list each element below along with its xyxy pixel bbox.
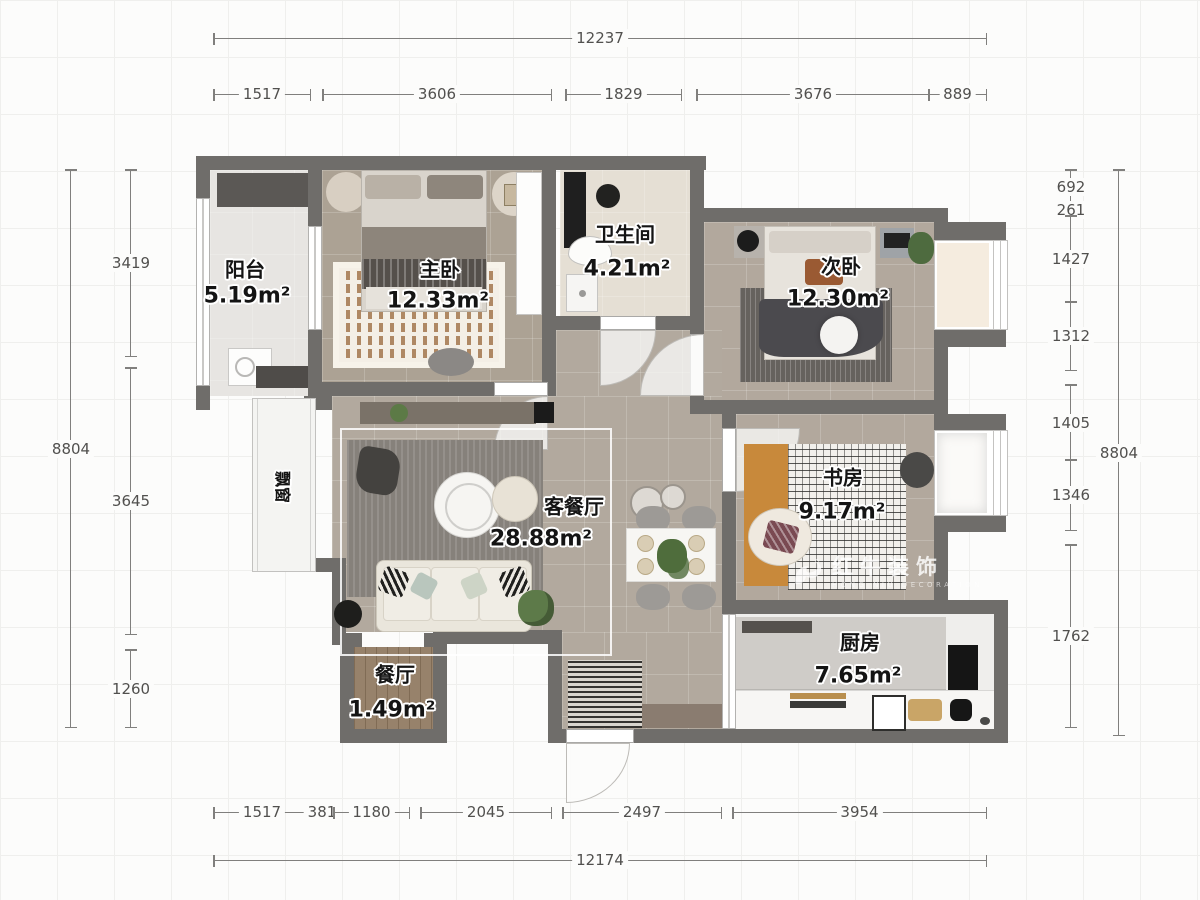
dim-bottom-seg4: 2045 xyxy=(421,812,551,813)
window-frame-line xyxy=(310,399,311,571)
cutting-board xyxy=(908,699,942,721)
dim-label: 692 xyxy=(1053,178,1090,196)
sofa xyxy=(376,560,532,632)
shelf-board xyxy=(790,693,846,699)
dim-bottom-seg5: 2497 xyxy=(563,812,721,813)
floorplan-canvas: 12237 1517 3606 1829 3676 889 1517 381 1… xyxy=(0,0,1200,900)
room-name: 书房 xyxy=(823,462,863,491)
dim-bottom-seg1: 1517 xyxy=(214,812,310,813)
wardrobe xyxy=(516,172,542,315)
dim-right-total: 8804 xyxy=(1118,170,1119,735)
room-name: 卫生间 xyxy=(595,219,655,248)
wall xyxy=(690,400,948,414)
pillow xyxy=(365,175,421,199)
wall xyxy=(722,492,736,614)
door-leaf xyxy=(600,316,656,330)
dim-right-seg3: 1427 xyxy=(1070,216,1071,302)
dim-label: 1427 xyxy=(1048,250,1094,268)
balcony-mat xyxy=(256,366,308,388)
wall xyxy=(722,600,1008,614)
room-area: 12.33m² xyxy=(387,289,489,314)
wall xyxy=(308,382,494,396)
place-setting xyxy=(637,535,654,552)
kitchen-sink xyxy=(872,695,906,731)
floor-lamp xyxy=(334,600,362,628)
room-area: 5.19m² xyxy=(204,284,291,309)
room-name: 次卧 xyxy=(821,251,861,280)
entry-door-leaf xyxy=(566,729,634,743)
dim-label: 1517 xyxy=(239,803,285,821)
dim-label: 12237 xyxy=(572,29,628,47)
dim-right-seg5: 1405 xyxy=(1070,385,1071,460)
doormat xyxy=(568,660,642,728)
window-frame-line xyxy=(1000,241,1001,329)
dim-label: 1405 xyxy=(1048,414,1094,432)
window-frame-line xyxy=(993,241,994,329)
centerpiece-plant xyxy=(657,539,687,573)
room-area: 4.21m² xyxy=(584,257,671,282)
rice-cooker xyxy=(950,699,972,721)
dim-label: 8804 xyxy=(1096,444,1142,462)
window xyxy=(308,226,322,330)
wall xyxy=(196,156,706,170)
wall xyxy=(690,208,948,222)
room-area: 7.65m² xyxy=(815,664,902,689)
entry-door-swing xyxy=(566,743,630,803)
dim-label: 889 xyxy=(939,85,976,103)
wall xyxy=(196,386,210,410)
drain xyxy=(579,290,586,297)
bedroom-pouf xyxy=(428,348,474,376)
bull-logo-icon xyxy=(788,556,824,590)
knob xyxy=(980,717,990,725)
shower-head xyxy=(596,184,620,208)
plant xyxy=(518,590,554,626)
wall xyxy=(548,729,566,743)
ball-lamp xyxy=(820,316,858,354)
tv xyxy=(884,233,910,248)
dim-right-seg1: 692 xyxy=(1070,170,1071,203)
dim-label: 3419 xyxy=(108,254,154,272)
place-setting xyxy=(688,535,705,552)
tv-console xyxy=(360,402,536,424)
window-frame-line xyxy=(257,399,258,571)
dim-top-seg5: 889 xyxy=(929,94,986,95)
nightstand xyxy=(326,172,366,212)
dim-label: 3676 xyxy=(790,85,836,103)
wall xyxy=(934,330,1006,347)
room-name: 餐厅 xyxy=(375,659,415,688)
study-desk xyxy=(937,433,987,513)
dim-top-seg3: 1829 xyxy=(566,94,681,95)
fridge xyxy=(948,645,978,691)
side-table xyxy=(492,476,538,522)
plant xyxy=(390,404,408,422)
dim-label: 1180 xyxy=(348,803,394,821)
wall xyxy=(934,516,1006,532)
wall xyxy=(308,156,322,226)
wall xyxy=(690,156,704,334)
bay-window-seat xyxy=(937,243,989,327)
wall xyxy=(556,316,600,330)
watermark-tagline: HONG NIU DECORATION xyxy=(832,581,983,589)
dim-left-seg1: 3419 xyxy=(130,170,131,356)
dim-top-seg1: 1517 xyxy=(214,94,310,95)
plaid-pillow xyxy=(762,520,800,555)
pillow xyxy=(427,175,483,199)
dining-chair xyxy=(636,584,670,610)
wall xyxy=(722,414,736,428)
watermark: 红牛装饰 HONG NIU DECORATION xyxy=(788,556,983,590)
dim-right-seg4: 1312 xyxy=(1070,302,1071,370)
dim-label: 1762 xyxy=(1048,627,1094,645)
wall xyxy=(340,729,447,743)
room-area: 28.88m² xyxy=(490,527,592,552)
dim-label: 1517 xyxy=(239,85,285,103)
washer-drum xyxy=(235,357,255,377)
dim-label: 1260 xyxy=(108,680,154,698)
wall xyxy=(196,156,210,198)
dim-left-seg3: 1260 xyxy=(130,650,131,727)
wall xyxy=(542,156,556,396)
dim-left-seg2: 3645 xyxy=(130,368,131,634)
dim-right-seg7: 1762 xyxy=(1070,545,1071,727)
watermark-brand: 红牛装饰 xyxy=(832,557,983,578)
place-setting xyxy=(637,558,654,575)
dim-label: 1829 xyxy=(600,85,646,103)
stove xyxy=(790,701,846,708)
balcony-mat xyxy=(217,173,308,207)
wall xyxy=(934,222,1006,240)
dim-label: 1346 xyxy=(1048,486,1094,504)
desk-chair xyxy=(900,452,934,488)
door-leaf xyxy=(494,382,548,396)
wall xyxy=(634,729,1008,743)
room-area: 1.49m² xyxy=(349,698,436,723)
dining-chair xyxy=(682,584,716,610)
room-name: 客餐厅 xyxy=(544,491,604,520)
room-area: 12.30m² xyxy=(787,287,889,312)
place-setting xyxy=(688,558,705,575)
window-frame-line xyxy=(1000,431,1001,515)
table-ring xyxy=(445,483,493,531)
dim-label: 3645 xyxy=(108,492,154,510)
dim-top-total: 12237 xyxy=(214,38,986,39)
entry-mat xyxy=(642,704,722,728)
dim-top-seg2: 3606 xyxy=(323,94,551,95)
room-name: 主卧 xyxy=(420,254,460,283)
dim-bottom-total: 12174 xyxy=(214,860,986,861)
plant xyxy=(908,232,934,264)
nightstand xyxy=(734,226,764,258)
door-leaf xyxy=(722,428,736,492)
wall xyxy=(934,414,1006,430)
room-area: 9.17m² xyxy=(799,500,886,525)
speaker xyxy=(737,230,759,252)
dim-bottom-seg2: 381 xyxy=(310,812,334,813)
wall xyxy=(994,614,1008,743)
throw-blanket xyxy=(354,445,403,497)
dim-bottom-seg3: 1180 xyxy=(334,812,409,813)
window-frame-line xyxy=(993,431,994,515)
range-hood xyxy=(742,621,812,633)
dim-label: 2045 xyxy=(463,803,509,821)
pendant-lamp xyxy=(660,484,686,510)
dim-label: 12174 xyxy=(572,851,628,869)
dim-bottom-seg6: 3954 xyxy=(733,812,986,813)
dim-label: 1312 xyxy=(1048,327,1094,345)
dim-top-seg4: 3676 xyxy=(697,94,929,95)
room-name: 阳台 xyxy=(225,254,265,283)
dim-label: 3954 xyxy=(836,803,882,821)
study-bay-window xyxy=(934,430,1008,516)
dining-table xyxy=(626,528,716,582)
room-name: 飘窗 xyxy=(272,471,296,503)
dim-label: 2497 xyxy=(619,803,665,821)
dim-label: 8804 xyxy=(48,440,94,458)
kitchen-sliding-door xyxy=(722,614,736,729)
dim-label: 3606 xyxy=(414,85,460,103)
speaker xyxy=(534,402,554,423)
dim-right-seg6: 1346 xyxy=(1070,460,1071,530)
kitchen-counter xyxy=(736,690,994,729)
dim-left-total: 8804 xyxy=(70,170,71,727)
second-bedroom-bay-window xyxy=(934,240,1008,330)
room-name: 厨房 xyxy=(840,627,880,656)
